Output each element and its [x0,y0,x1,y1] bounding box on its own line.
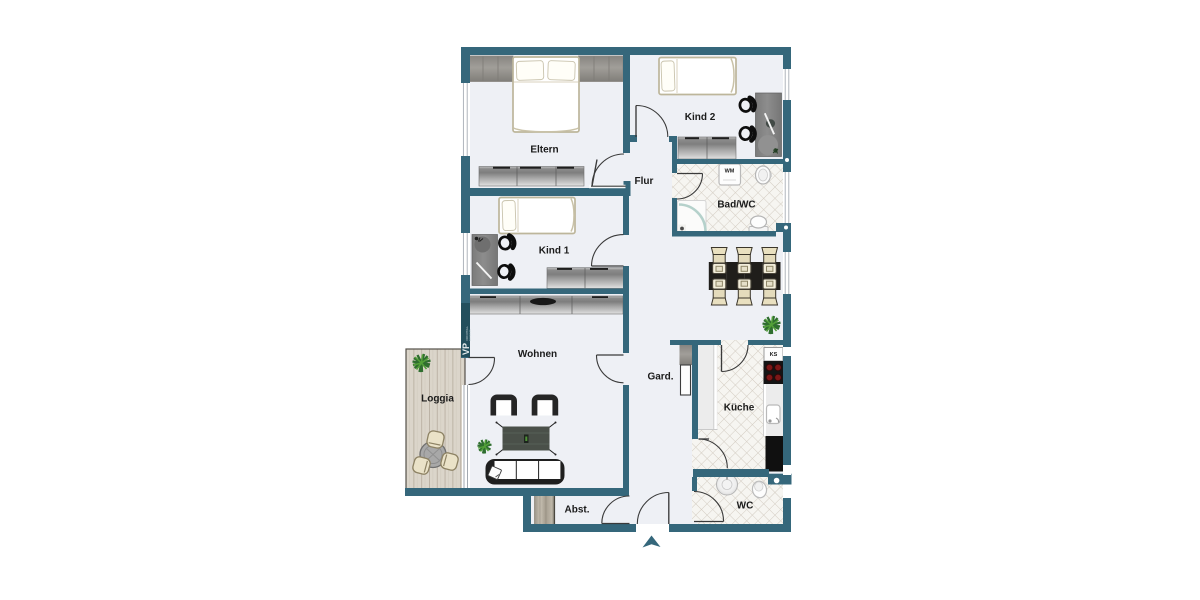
svg-text:IMMOBILIEN: IMMOBILIEN [470,329,472,341]
svg-text:Wohnen: Wohnen [518,349,557,360]
svg-text:VON POLL: VON POLL [465,326,469,341]
svg-text:VP: VP [461,343,471,355]
svg-text:Kind 2: Kind 2 [685,112,716,123]
svg-text:Flur: Flur [635,176,654,187]
svg-text:KS: KS [770,352,778,358]
svg-text:Küche: Küche [724,403,755,414]
svg-text:WM: WM [725,169,735,175]
svg-text:WC: WC [737,501,754,512]
svg-text:Bad/WC: Bad/WC [717,200,755,211]
svg-text:Loggia: Loggia [421,394,454,405]
svg-text:Gard.: Gard. [647,372,673,383]
svg-text:Eltern: Eltern [530,145,558,156]
svg-text:Abst.: Abst. [565,505,590,516]
svg-text:Kind 1: Kind 1 [539,246,570,257]
